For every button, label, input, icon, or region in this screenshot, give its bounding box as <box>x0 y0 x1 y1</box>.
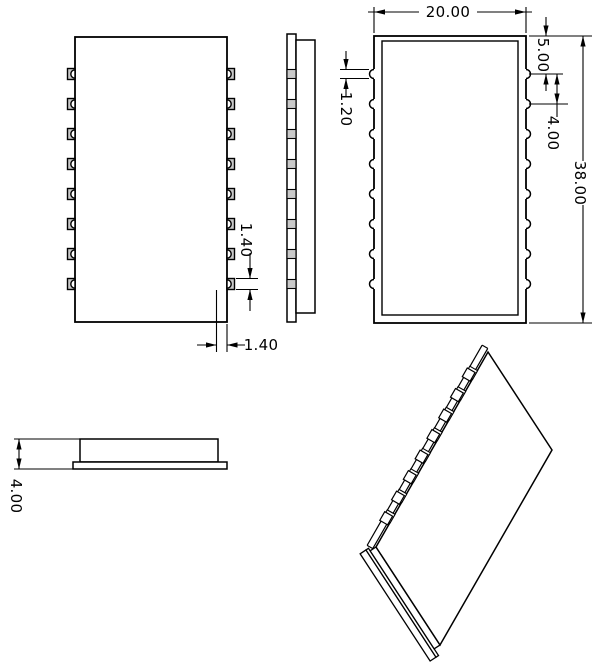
dim-thickness-label: 4.00 <box>7 479 25 514</box>
castellation-half-hole <box>71 190 75 198</box>
bottom-view-base-plate <box>73 462 227 469</box>
edge-notch-bump <box>526 280 531 289</box>
edge-notch-bump <box>526 190 531 199</box>
front-view-body <box>75 37 227 322</box>
castellation-half-hole <box>71 160 75 168</box>
castellation-half-hole <box>71 100 75 108</box>
back-view <box>370 36 531 323</box>
edge-notch-bump <box>370 70 375 79</box>
side-pad-band <box>287 280 296 289</box>
side-pad-band <box>287 160 296 169</box>
edge-notch-bump <box>526 250 531 259</box>
back-view-inner-outline <box>382 41 518 315</box>
side-pad-band <box>287 250 296 259</box>
bottom-view <box>73 439 227 469</box>
side-pad-band <box>287 100 296 109</box>
edge-notch-bump <box>526 160 531 169</box>
castellation-half-hole <box>227 160 231 168</box>
side-pad-band <box>287 220 296 229</box>
edge-notch-bump <box>370 190 375 199</box>
dim-notch-pitch: 4.00 <box>529 74 568 150</box>
dim-notch-height: 1.40 <box>236 223 258 311</box>
edge-notch-bump <box>370 100 375 109</box>
dim-overall-height: 38.00 <box>529 36 592 323</box>
dim-top-margin-label: 5.00 <box>534 38 552 73</box>
castellation-half-hole <box>227 100 231 108</box>
isometric-view <box>360 345 552 661</box>
side-pad-band <box>287 70 296 79</box>
bottom-view-body <box>80 439 218 462</box>
edge-notch-bump <box>370 250 375 259</box>
side-view <box>287 34 315 322</box>
castellation-half-hole <box>71 250 75 258</box>
side-pad-band <box>287 190 296 199</box>
edge-notch-bump <box>370 220 375 229</box>
castellation-half-hole <box>227 130 231 138</box>
castellation-half-hole <box>71 280 75 288</box>
dim-overall-height-label: 38.00 <box>571 161 589 205</box>
castellation-half-hole <box>71 220 75 228</box>
dim-notch-height-label: 1.40 <box>237 223 255 258</box>
iso-rail-end-cap <box>482 345 488 348</box>
castellation-half-hole <box>71 70 75 78</box>
dim-slot-width-label: 1.20 <box>337 92 355 127</box>
edge-notch-bump <box>526 220 531 229</box>
dim-notch-pitch-label: 4.00 <box>544 116 562 151</box>
dim-overall-width: 20.00 <box>368 3 532 33</box>
dim-thickness: 4.00 <box>7 439 80 513</box>
side-pad-band <box>287 130 296 139</box>
front-view <box>68 37 235 322</box>
castellation-half-hole <box>227 250 231 258</box>
castellation-half-hole <box>227 70 231 78</box>
technical-drawing: 1.40 1.40 20.00 5. <box>0 0 604 665</box>
edge-notch-bump <box>370 280 375 289</box>
cad-drawing-canvas: 1.40 1.40 20.00 5. <box>0 0 604 665</box>
dim-overall-width-label: 20.00 <box>426 3 470 21</box>
castellation-half-hole <box>227 280 231 288</box>
edge-notch-bump <box>526 130 531 139</box>
castellation-half-hole <box>71 130 75 138</box>
edge-notch-bump <box>370 130 375 139</box>
side-view-body <box>296 40 315 313</box>
dim-slot-width: 1.20 <box>337 51 369 126</box>
dim-notch-depth-label: 1.40 <box>244 336 279 354</box>
edge-notch-bump <box>370 160 375 169</box>
castellation-half-hole <box>227 220 231 228</box>
castellation-half-hole <box>227 190 231 198</box>
